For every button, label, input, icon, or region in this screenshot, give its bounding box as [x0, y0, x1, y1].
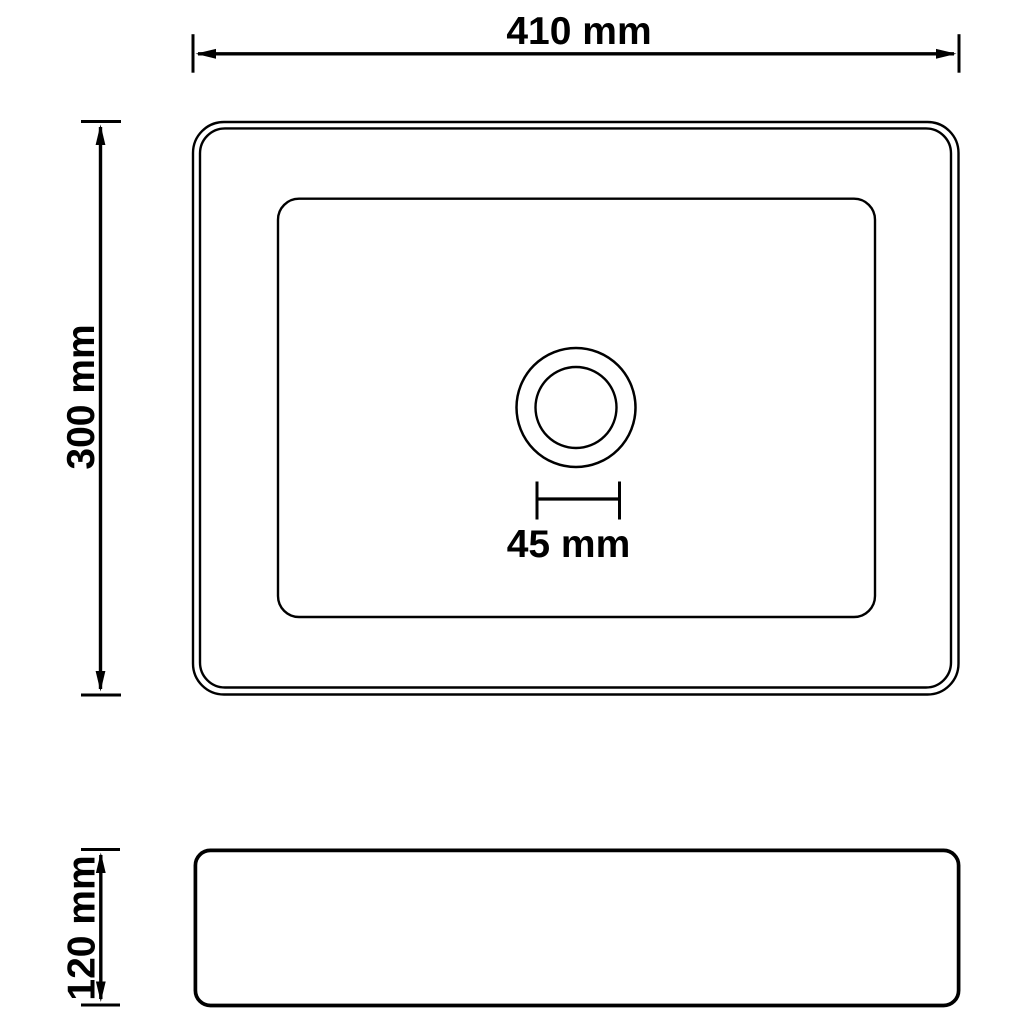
svg-text:120 mm: 120 mm [60, 855, 103, 1000]
svg-text:410 mm: 410 mm [506, 10, 651, 53]
svg-text:45 mm: 45 mm [507, 523, 631, 566]
svg-text:300 mm: 300 mm [60, 324, 103, 469]
